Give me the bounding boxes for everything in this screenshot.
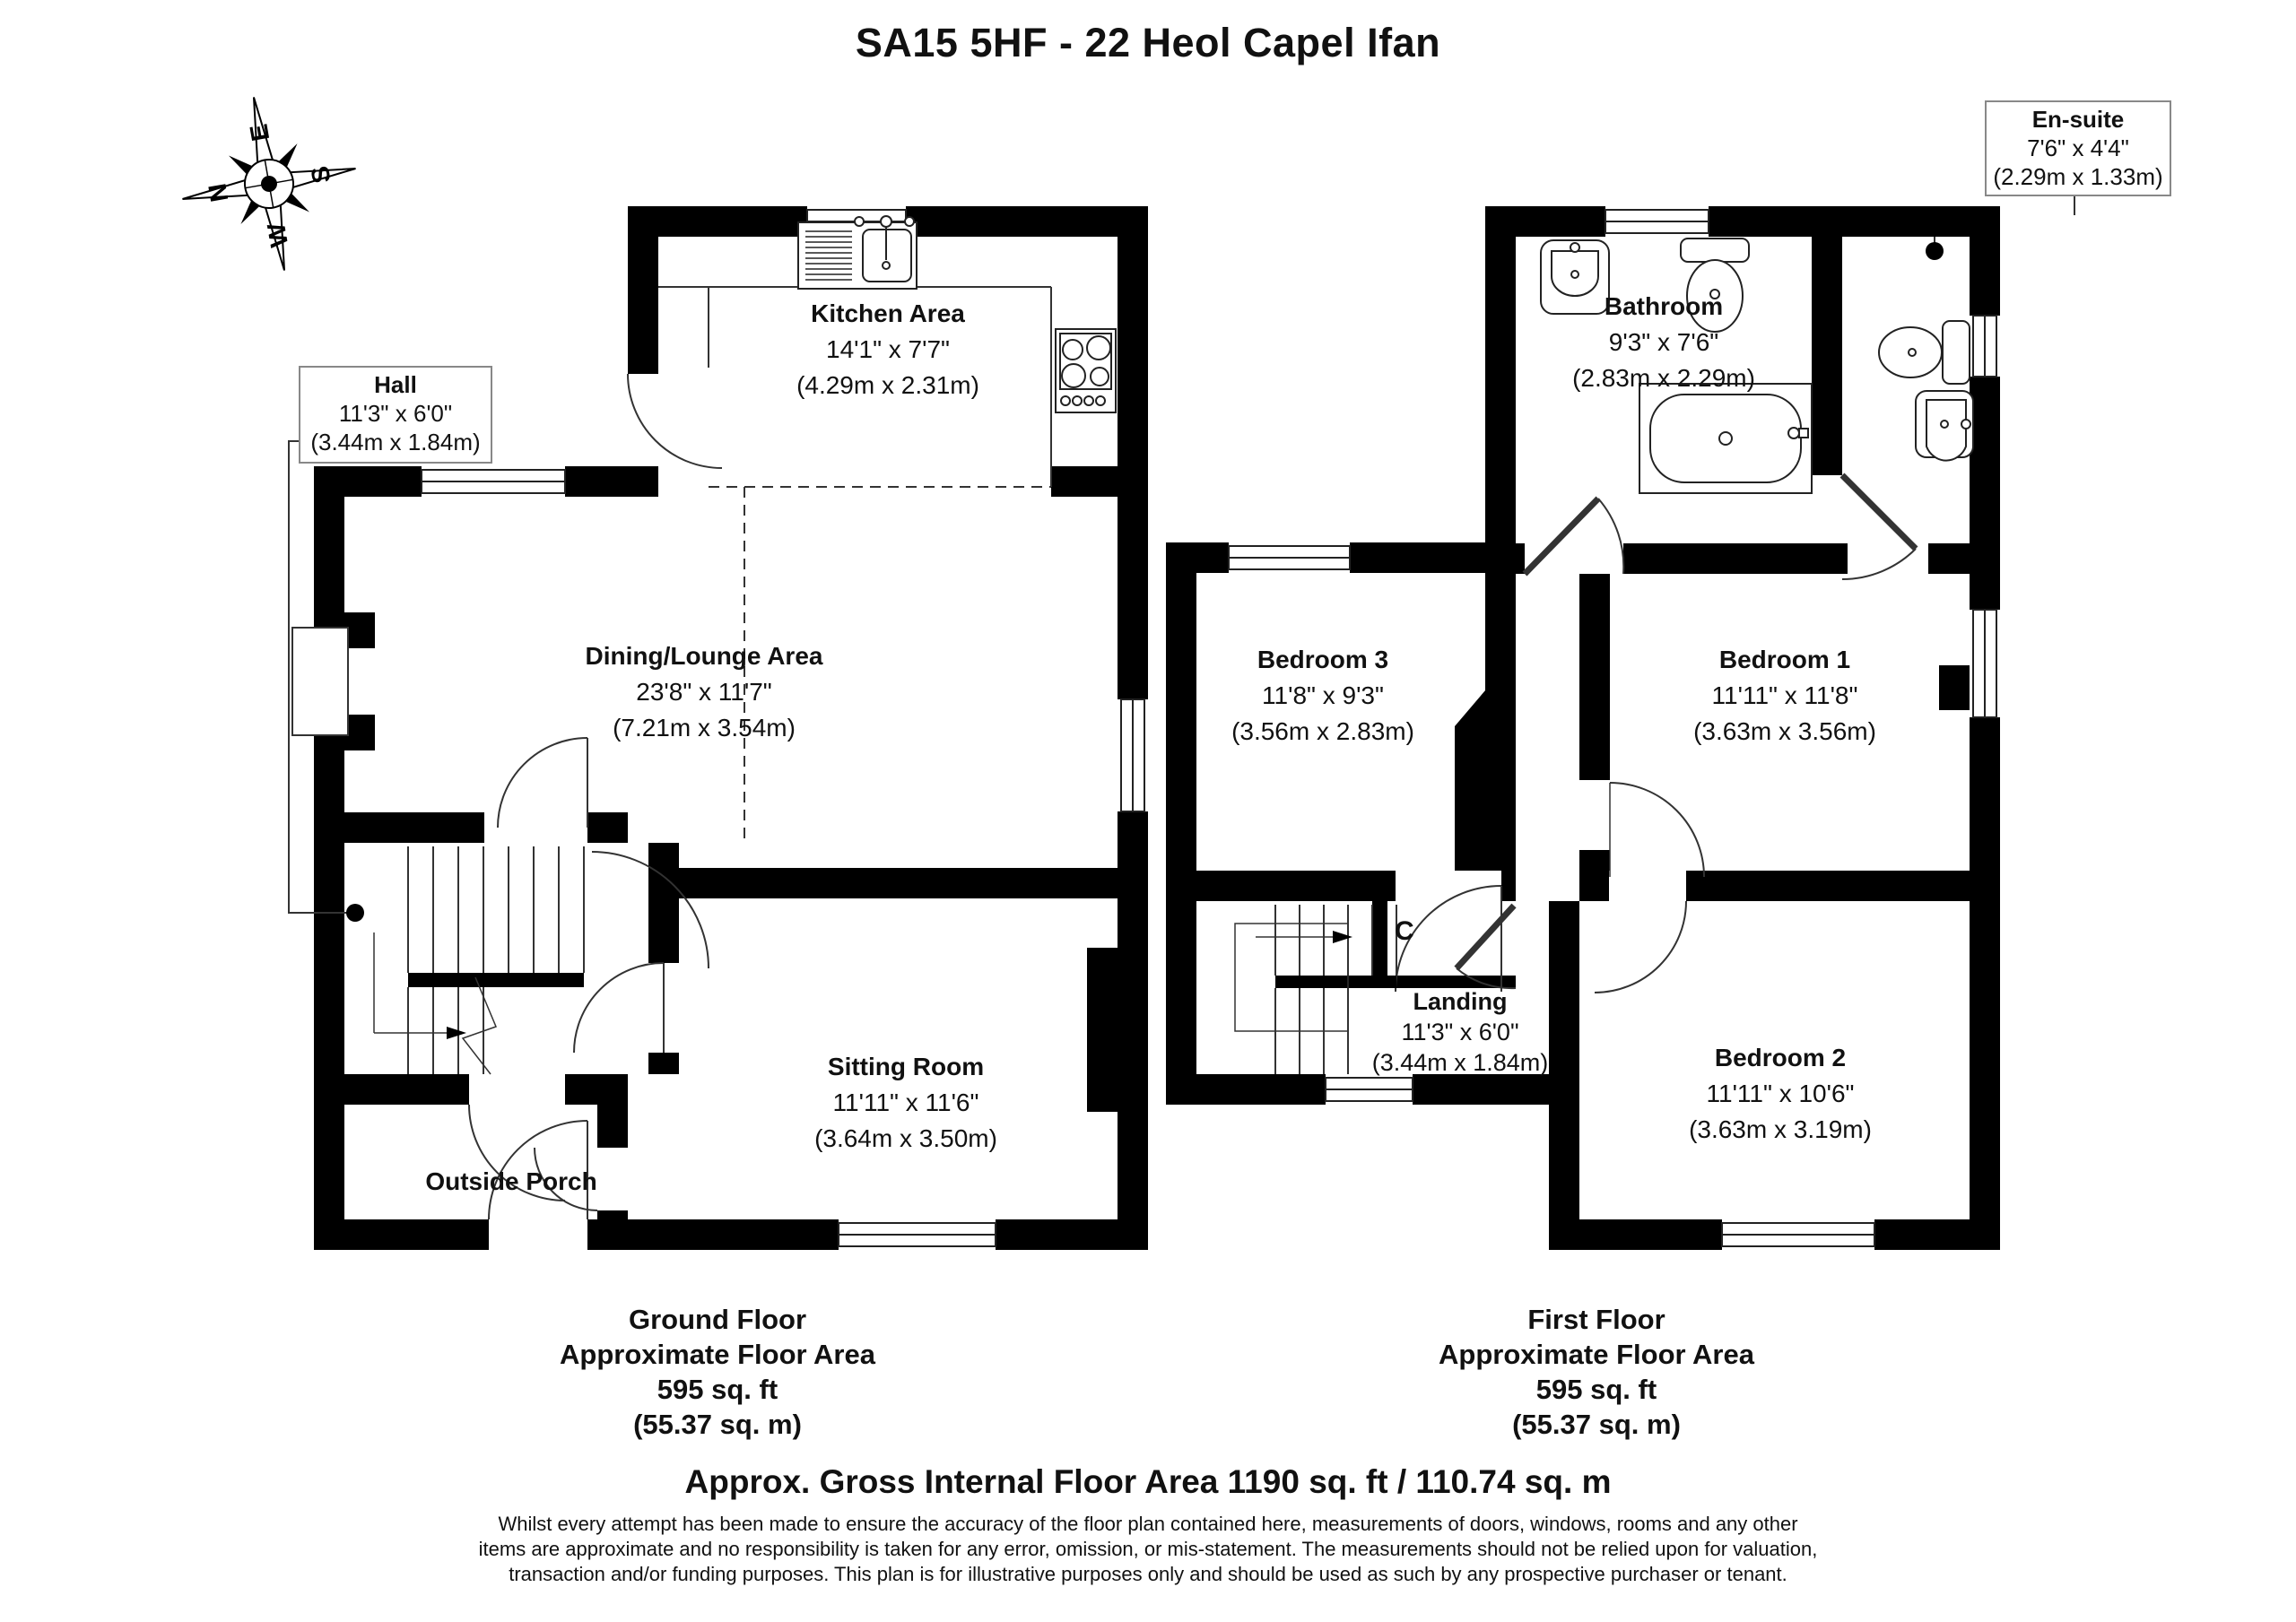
- compass-e: E: [245, 122, 275, 143]
- compass-s: S: [306, 164, 336, 186]
- ensuite-label: En-suite 7'6" x 4'4" (2.29m x 1.33m): [1985, 100, 2171, 196]
- floorplan-page: SA15 5HF - 22 Heol Capel Ifan N S E: [0, 0, 2296, 1622]
- sitting-room-label: Sitting Room 11'11" x 11'6" (3.64m x 3.5…: [726, 1049, 1085, 1157]
- kitchen-label: Kitchen Area 14'1" x 7'7" (4.29m x 2.31m…: [709, 296, 1067, 403]
- bathroom-label: Bathroom 9'3" x 7'6" (2.83m x 2.29m): [1484, 289, 1843, 396]
- kitchen-sink-icon: [798, 216, 917, 289]
- landing-label: Landing 11'3" x 6'0" (3.44m x 1.84m): [1281, 986, 1639, 1078]
- bedroom1-label: Bedroom 1 11'11" x 11'8" (3.63m x 3.56m): [1605, 642, 1964, 750]
- dining-lounge-label: Dining/Lounge Area 23'8" x 11'7" (7.21m …: [525, 638, 883, 746]
- compass-n: N: [203, 181, 233, 204]
- gross-area-line: Approx. Gross Internal Floor Area 1190 s…: [0, 1463, 2296, 1501]
- ensuite-basin-icon: [1916, 391, 1973, 461]
- ensuite-toilet-icon: [1879, 321, 1970, 384]
- ground-floor-caption: Ground Floor Approximate Floor Area 595 …: [493, 1302, 942, 1442]
- fireplace: [292, 628, 348, 735]
- hall-label: Hall 11'3" x 6'0" (3.44m x 1.84m): [299, 366, 492, 464]
- first-floor-caption: First Floor Approximate Floor Area 595 s…: [1372, 1302, 1821, 1442]
- compass-w: W: [262, 221, 293, 249]
- bath-icon: [1639, 384, 1812, 493]
- outside-porch-label: Outside Porch: [332, 1164, 691, 1200]
- ensuite-light: [1926, 237, 1944, 260]
- bedroom3-label: Bedroom 3 11'8" x 9'3" (3.56m x 2.83m): [1144, 642, 1502, 750]
- disclaimer-text: Whilst every attempt has been made to en…: [475, 1512, 1821, 1587]
- bedroom2-label: Bedroom 2 11'11" x 10'6" (3.63m x 3.19m): [1601, 1040, 1960, 1148]
- floor-plan-graphics: N S E W: [0, 0, 2296, 1622]
- compass-icon: N S E W: [167, 82, 370, 285]
- ground-stairs: [374, 846, 584, 1074]
- cupboard-label: C: [1395, 916, 1414, 947]
